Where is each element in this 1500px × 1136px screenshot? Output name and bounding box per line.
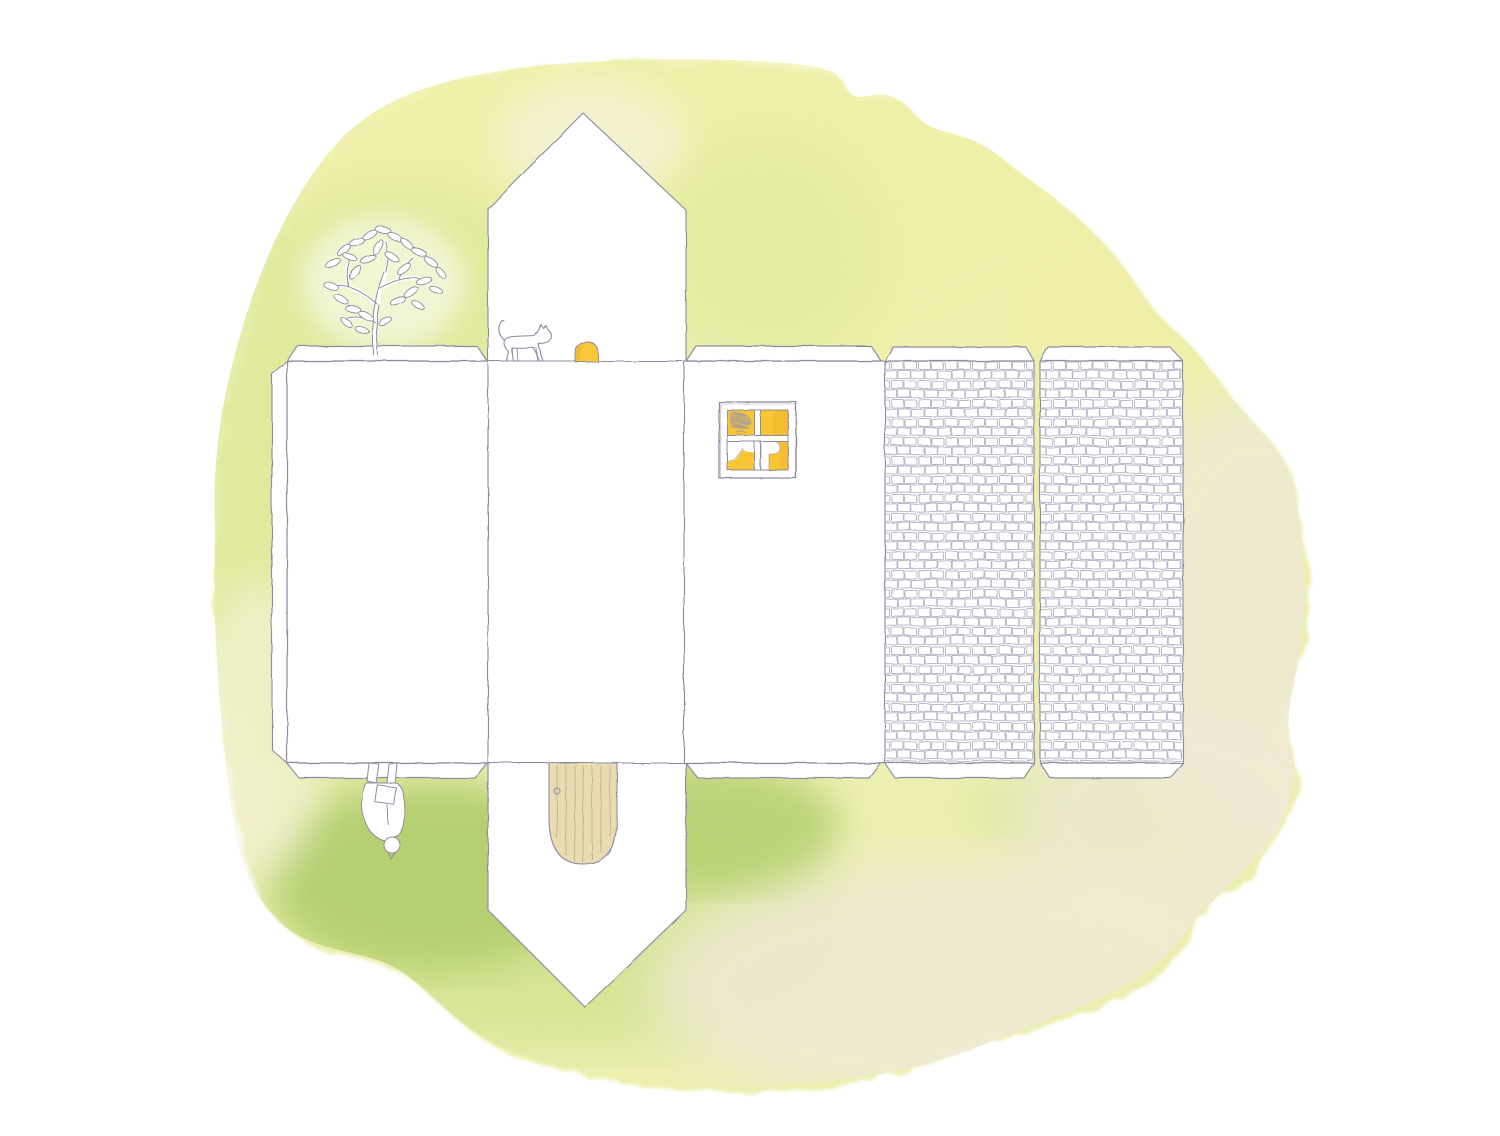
figure-head: [384, 837, 400, 853]
roof-left-bottom-flap: [885, 763, 1034, 778]
gable-door-yellow: [575, 342, 598, 362]
side-wall-top-flap: [287, 346, 487, 361]
window-mullion-horizontal: [727, 436, 788, 442]
side-wall-bottom-flap: [287, 763, 487, 778]
house-net-scene: [0, 0, 1500, 1136]
watercolor-illustration: [0, 0, 1500, 1136]
roof-right-top-flap: [1040, 347, 1183, 361]
figure-leg-right: [387, 763, 397, 784]
front-door-wood: [549, 763, 617, 864]
gable-strip: [488, 113, 686, 1007]
lit-window: [719, 402, 796, 478]
shingle-texture-left: [886, 362, 1033, 762]
figure-bag: [375, 785, 396, 804]
roof-right-bottom-flap: [1040, 763, 1183, 778]
side-wall-panel: [287, 361, 490, 763]
shingle-texture-right: [1041, 362, 1182, 762]
front-wall-top-flap: [686, 346, 881, 361]
window-pane-br-shade: [780, 442, 788, 470]
side-wall-left-flap: [272, 361, 287, 763]
roof-left-top-flap: [885, 347, 1034, 361]
window-pane-tr-shade: [774, 411, 788, 436]
front-wall-bottom-flap: [686, 763, 880, 778]
